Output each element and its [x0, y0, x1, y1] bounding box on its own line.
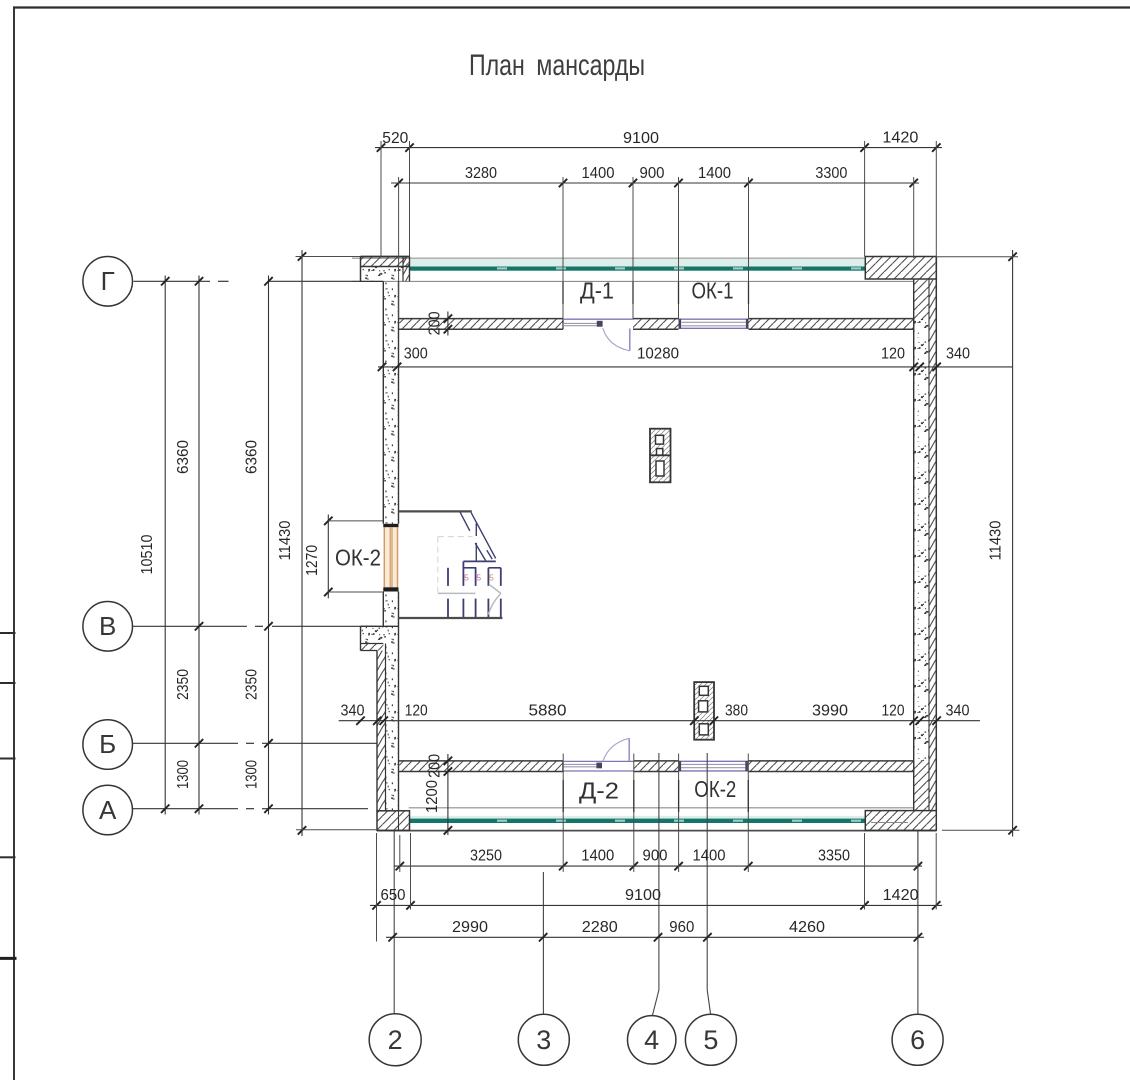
svg-text:Д-1: Д-1 — [580, 278, 614, 304]
svg-text:900: 900 — [643, 848, 668, 865]
svg-text:10280: 10280 — [637, 346, 679, 363]
svg-text:1400: 1400 — [582, 165, 615, 182]
svg-text:1200: 1200 — [424, 780, 441, 813]
svg-text:10510: 10510 — [139, 534, 156, 574]
svg-text:План мансарды: План мансарды — [469, 49, 645, 82]
svg-text:А: А — [99, 795, 117, 825]
svg-text:200: 200 — [427, 754, 444, 778]
svg-text:1300: 1300 — [175, 760, 192, 789]
svg-text:ОК-2: ОК-2 — [335, 545, 381, 571]
svg-text:650: 650 — [381, 887, 406, 904]
svg-text:340: 340 — [341, 703, 365, 720]
svg-text:3280: 3280 — [465, 165, 497, 182]
svg-text:5: 5 — [703, 1025, 718, 1055]
svg-text:6: 6 — [910, 1025, 925, 1055]
svg-text:9100: 9100 — [623, 130, 659, 147]
svg-text:3250: 3250 — [470, 848, 502, 865]
svg-text:2280: 2280 — [582, 919, 618, 936]
svg-text:380: 380 — [725, 703, 748, 720]
svg-text:5: 5 — [476, 573, 481, 583]
svg-text:ОК-2: ОК-2 — [694, 776, 736, 802]
svg-text:1300: 1300 — [243, 760, 260, 789]
svg-text:4: 4 — [644, 1025, 659, 1055]
svg-text:5880: 5880 — [529, 703, 567, 720]
svg-text:6360: 6360 — [175, 440, 192, 474]
svg-text:1420: 1420 — [883, 887, 919, 904]
svg-text:340: 340 — [946, 703, 970, 720]
svg-text:4260: 4260 — [789, 919, 825, 936]
svg-text:3300: 3300 — [815, 165, 847, 182]
svg-text:9100: 9100 — [625, 887, 661, 904]
svg-text:Г: Г — [101, 266, 115, 296]
svg-text:960: 960 — [669, 919, 694, 936]
svg-text:5: 5 — [464, 573, 469, 583]
svg-text:2: 2 — [388, 1025, 403, 1055]
svg-text:1400: 1400 — [581, 848, 614, 865]
svg-text:300: 300 — [404, 346, 428, 363]
svg-text:5: 5 — [489, 573, 494, 583]
svg-text:1400: 1400 — [693, 848, 726, 865]
svg-text:2350: 2350 — [175, 669, 192, 700]
svg-text:120: 120 — [405, 703, 428, 720]
svg-text:200: 200 — [427, 311, 444, 335]
svg-text:120: 120 — [881, 346, 905, 363]
svg-text:6360: 6360 — [243, 440, 260, 474]
svg-text:520: 520 — [382, 130, 408, 147]
svg-text:120: 120 — [882, 703, 905, 720]
svg-text:3990: 3990 — [812, 703, 848, 720]
svg-text:1270: 1270 — [304, 545, 321, 576]
svg-text:1400: 1400 — [698, 165, 731, 182]
svg-text:ОК-1: ОК-1 — [692, 278, 734, 304]
svg-text:В: В — [99, 611, 116, 641]
svg-text:11430: 11430 — [988, 520, 1005, 560]
svg-text:11430: 11430 — [277, 520, 294, 560]
svg-text:3: 3 — [536, 1025, 551, 1055]
svg-text:Д-2: Д-2 — [579, 778, 619, 804]
svg-text:900: 900 — [640, 165, 665, 182]
svg-text:Б: Б — [99, 729, 116, 759]
svg-text:2350: 2350 — [243, 669, 260, 700]
svg-text:2990: 2990 — [452, 919, 488, 936]
svg-text:1420: 1420 — [882, 130, 918, 147]
svg-text:3350: 3350 — [818, 848, 850, 865]
svg-text:340: 340 — [946, 346, 970, 363]
